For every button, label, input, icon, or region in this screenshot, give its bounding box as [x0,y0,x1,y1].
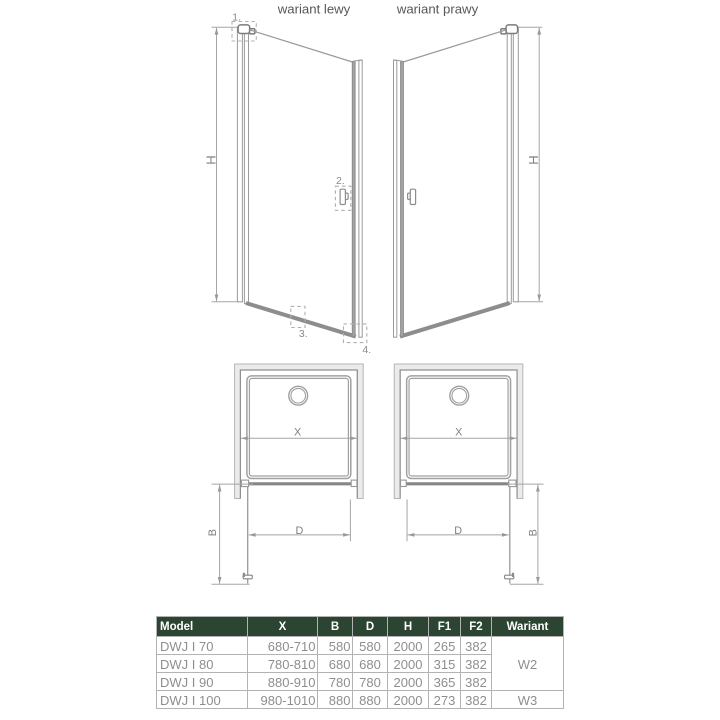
svg-text:X: X [294,427,301,439]
svg-text:4.: 4. [362,344,371,356]
svg-text:H: H [526,155,541,164]
svg-text:D: D [295,525,303,537]
svg-text:wariant prawy: wariant prawy [396,2,479,17]
svg-text:B: B [207,529,219,536]
svg-text:wariant lewy: wariant lewy [277,2,351,17]
svg-text:H: H [203,155,218,164]
svg-text:2.: 2. [336,175,345,187]
svg-text:B: B [527,529,539,536]
svg-text:D: D [454,525,462,537]
svg-text:X: X [455,427,462,439]
svg-text:3.: 3. [299,328,308,340]
